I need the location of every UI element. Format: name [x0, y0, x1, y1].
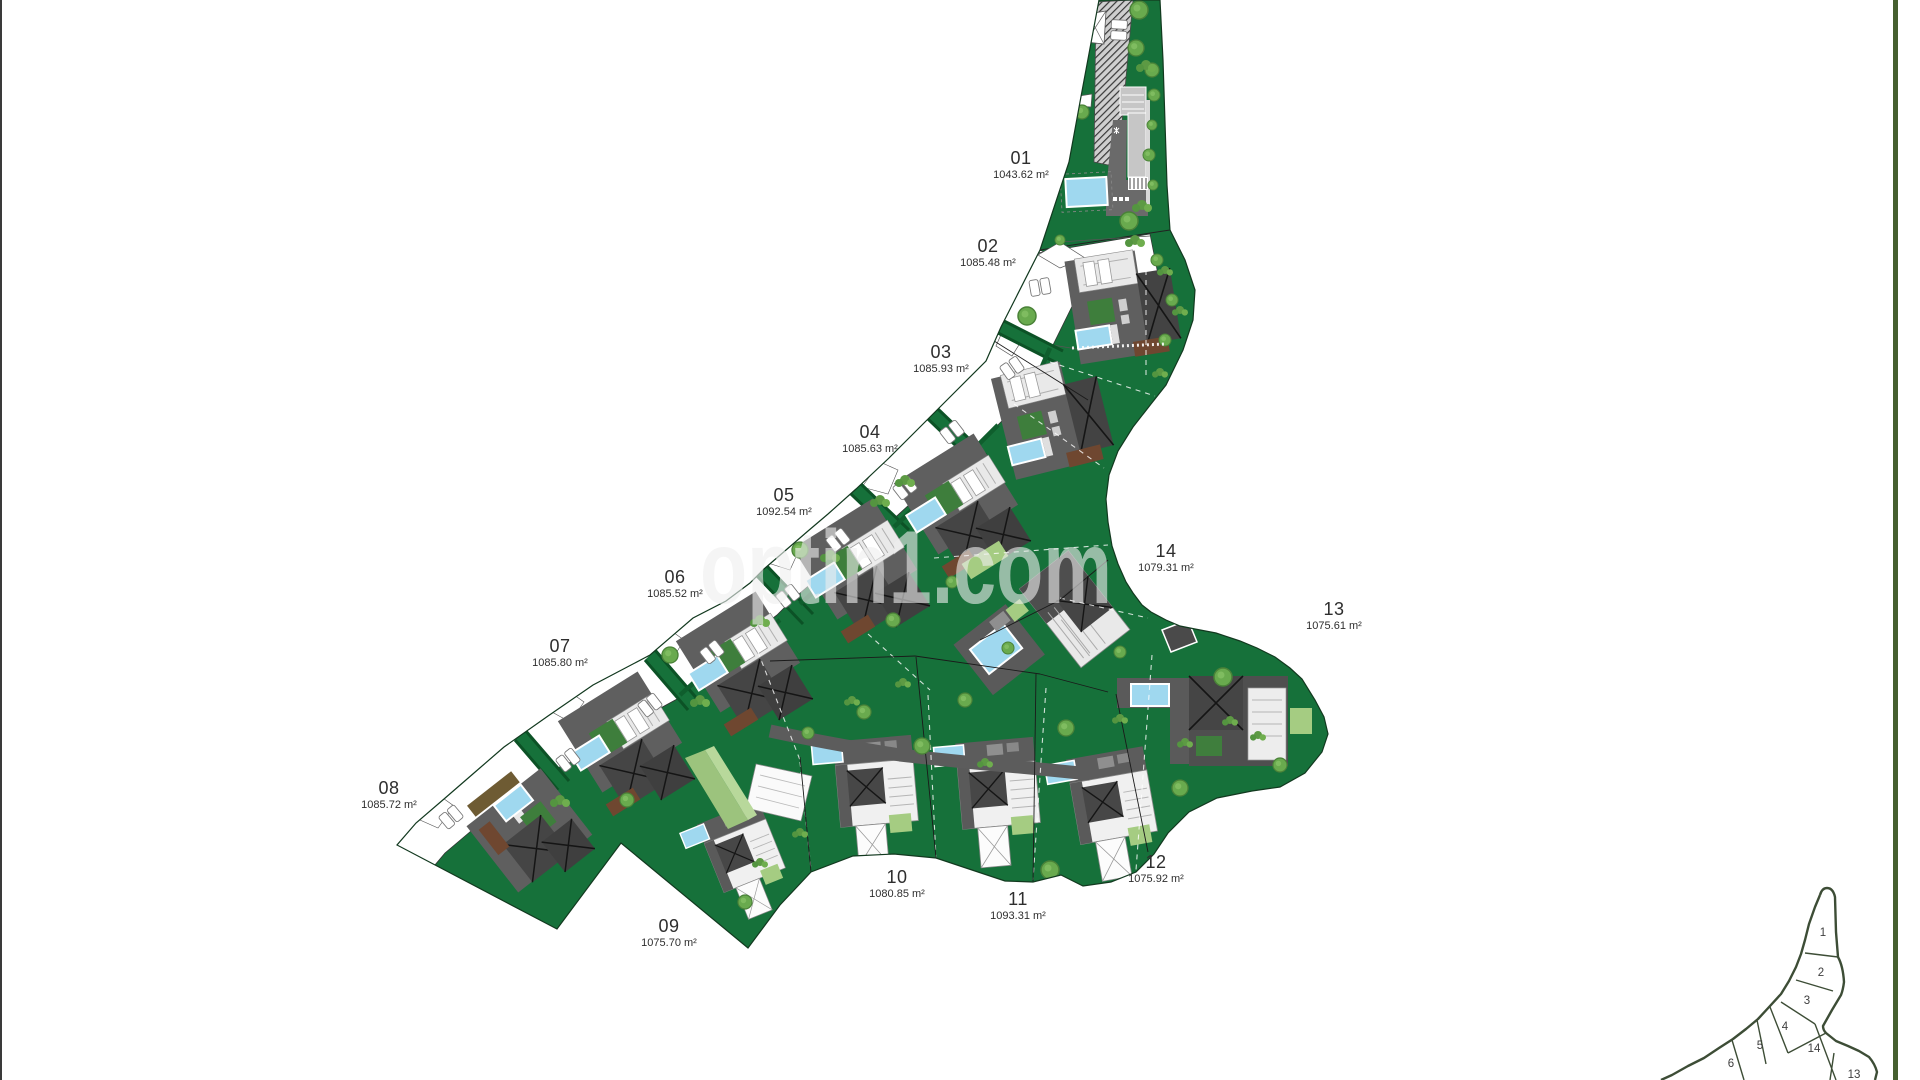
- svg-text:2: 2: [1818, 967, 1824, 979]
- svg-text:13: 13: [1323, 599, 1344, 619]
- svg-text:1085.72 m²: 1085.72 m²: [361, 799, 417, 811]
- svg-text:10: 10: [886, 867, 907, 887]
- svg-text:1075.70 m²: 1075.70 m²: [641, 937, 697, 949]
- svg-text:14: 14: [1808, 1043, 1821, 1055]
- svg-text:1085.48 m²: 1085.48 m²: [960, 257, 1016, 269]
- svg-text:1079.31 m²: 1079.31 m²: [1138, 562, 1194, 574]
- svg-text:6: 6: [1728, 1058, 1734, 1070]
- svg-text:1075.92 m²: 1075.92 m²: [1128, 873, 1184, 885]
- svg-text:12: 12: [1145, 852, 1166, 872]
- svg-text:1085.93 m²: 1085.93 m²: [913, 363, 969, 375]
- svg-text:04: 04: [859, 422, 880, 442]
- svg-text:1085.80 m²: 1085.80 m²: [532, 657, 588, 669]
- svg-text:optin1.com: optin1.com: [700, 510, 1112, 626]
- svg-text:14: 14: [1155, 541, 1176, 561]
- svg-text:03: 03: [930, 342, 951, 362]
- svg-text:1043.62 m²: 1043.62 m²: [993, 169, 1049, 181]
- svg-text:06: 06: [664, 567, 685, 587]
- svg-text:07: 07: [549, 636, 570, 656]
- svg-text:5: 5: [1757, 1040, 1763, 1052]
- svg-text:13: 13: [1848, 1069, 1861, 1080]
- svg-text:02: 02: [977, 236, 998, 256]
- svg-text:1085.63 m²: 1085.63 m²: [842, 443, 898, 455]
- svg-text:1093.31 m²: 1093.31 m²: [990, 910, 1046, 922]
- svg-text:3: 3: [1804, 995, 1810, 1007]
- svg-text:1085.52 m²: 1085.52 m²: [647, 588, 703, 600]
- svg-text:1: 1: [1820, 927, 1826, 939]
- svg-text:11: 11: [1008, 889, 1028, 909]
- svg-text:1092.54 m²: 1092.54 m²: [756, 506, 812, 518]
- svg-text:1080.85 m²: 1080.85 m²: [869, 888, 925, 900]
- svg-text:4: 4: [1782, 1021, 1789, 1033]
- svg-text:05: 05: [773, 485, 794, 505]
- svg-text:08: 08: [378, 778, 399, 798]
- svg-text:09: 09: [658, 916, 679, 936]
- svg-text:1075.61 m²: 1075.61 m²: [1306, 620, 1362, 632]
- svg-text:01: 01: [1010, 148, 1031, 168]
